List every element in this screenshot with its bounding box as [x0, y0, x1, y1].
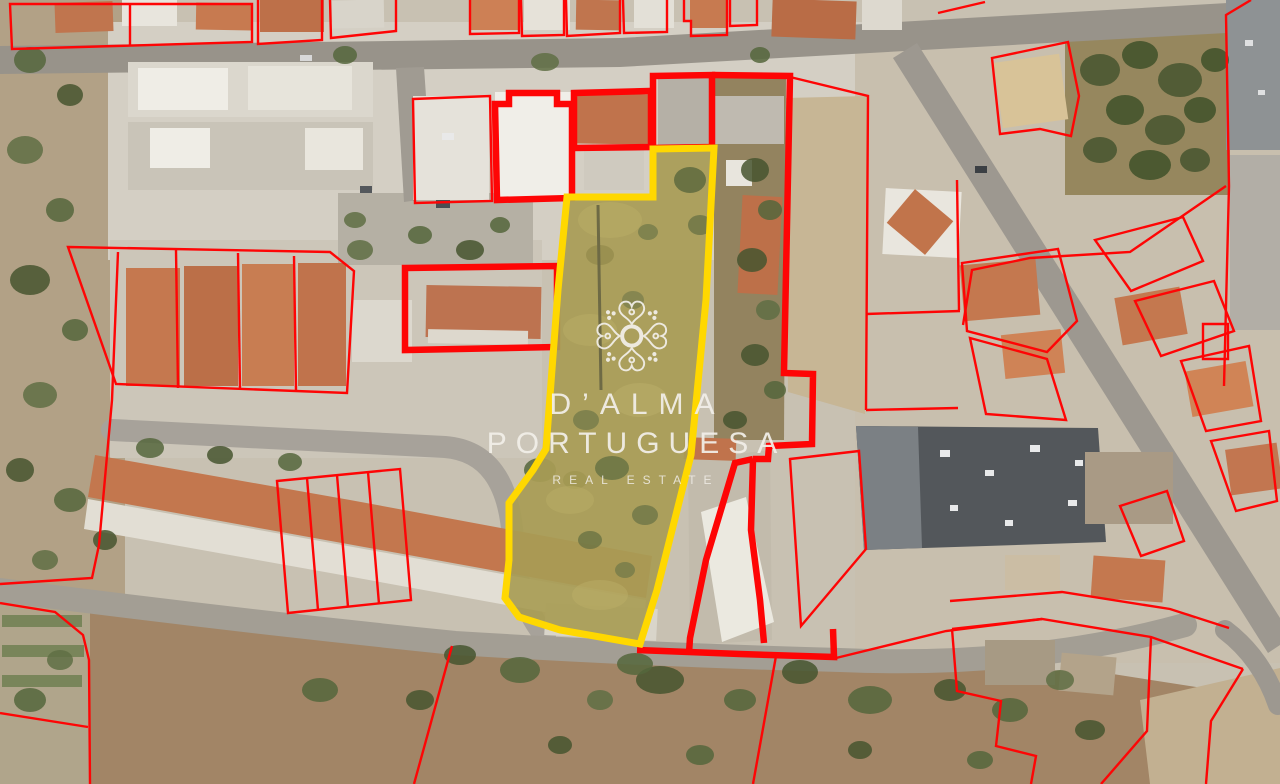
- tree: [1122, 41, 1158, 69]
- tree: [1145, 115, 1185, 145]
- tree: [1201, 48, 1229, 72]
- terrain-patch: [2, 675, 82, 687]
- tree: [23, 382, 57, 408]
- building: [1091, 556, 1166, 603]
- tree: [62, 319, 88, 341]
- rooftop-detail: [1245, 40, 1253, 46]
- building: [260, 0, 324, 32]
- tree: [1129, 150, 1171, 180]
- building: [1226, 0, 1280, 150]
- tree: [967, 751, 993, 769]
- tree: [934, 679, 966, 701]
- plot-vegetation: [572, 580, 628, 610]
- building: [138, 68, 228, 110]
- tree: [14, 688, 46, 712]
- building: [332, 0, 384, 28]
- building: [994, 54, 1069, 129]
- building: [150, 128, 210, 168]
- building: [714, 96, 784, 144]
- tree: [500, 657, 540, 683]
- building: [305, 128, 363, 170]
- tree: [1180, 148, 1210, 172]
- tree: [686, 745, 714, 765]
- building: [54, 1, 113, 33]
- plot-vegetation: [578, 202, 642, 238]
- building: [574, 93, 653, 144]
- tree: [587, 690, 613, 710]
- rooftop-detail: [950, 505, 958, 511]
- building: [576, 0, 621, 30]
- rooftop-detail: [1075, 460, 1083, 466]
- building: [771, 0, 856, 39]
- tree: [10, 265, 50, 295]
- tree: [848, 741, 872, 759]
- tree: [93, 530, 117, 550]
- building: [413, 96, 489, 200]
- terrain-patch: [786, 96, 868, 414]
- rooftop-detail: [1030, 445, 1040, 452]
- tree: [6, 458, 34, 482]
- building: [960, 259, 1041, 321]
- tree: [1106, 95, 1144, 125]
- rooftop-detail: [360, 186, 372, 193]
- building: [184, 266, 238, 386]
- tree: [1046, 670, 1074, 690]
- tree: [992, 698, 1028, 722]
- rooftop-detail: [1005, 520, 1013, 526]
- plot-vegetation: [573, 410, 599, 430]
- tree: [136, 438, 164, 458]
- plot-vegetation: [632, 505, 658, 525]
- terrain-patch: [2, 645, 84, 657]
- tree: [32, 550, 58, 570]
- building: [196, 3, 252, 31]
- rooftop-detail: [300, 55, 312, 61]
- plot-vegetation: [563, 314, 617, 346]
- plot-vegetation: [622, 291, 644, 309]
- rooftop-detail: [985, 470, 994, 476]
- tree: [406, 690, 434, 710]
- tree: [741, 344, 769, 366]
- terrain-patch: [0, 600, 90, 784]
- rooftop-detail: [940, 450, 950, 457]
- tree: [7, 136, 43, 164]
- tree: [617, 653, 653, 675]
- tree: [57, 84, 83, 106]
- plot-vegetation: [612, 383, 668, 417]
- tree: [741, 158, 769, 182]
- tree: [490, 217, 510, 233]
- tree: [737, 248, 767, 272]
- building: [126, 268, 180, 386]
- tree: [1080, 54, 1120, 86]
- red-parcel-outline: [790, 451, 866, 626]
- tree: [47, 650, 73, 670]
- tree: [782, 660, 818, 684]
- rooftop-detail: [1258, 90, 1265, 95]
- plot-vegetation: [595, 456, 629, 480]
- tree: [1184, 97, 1216, 123]
- tree: [333, 46, 357, 64]
- building: [862, 0, 902, 30]
- tree: [456, 240, 484, 260]
- building: [242, 264, 294, 386]
- red-parcel-outline: [938, 2, 985, 13]
- building: [584, 150, 644, 190]
- tree: [1083, 137, 1117, 163]
- tree: [758, 200, 782, 220]
- tree: [46, 198, 74, 222]
- building: [1085, 452, 1173, 524]
- plot-vegetation: [546, 486, 594, 514]
- tree: [1075, 720, 1105, 740]
- tree: [302, 678, 338, 702]
- tree: [548, 736, 572, 754]
- tree: [54, 488, 86, 512]
- building: [495, 92, 571, 198]
- tree: [750, 47, 770, 63]
- tree: [764, 381, 786, 399]
- plot-vegetation: [615, 562, 635, 578]
- plot-vegetation: [674, 167, 706, 193]
- plot-vegetation: [638, 224, 658, 240]
- building: [1230, 155, 1280, 330]
- tree: [207, 446, 233, 464]
- tree: [344, 212, 366, 228]
- building: [470, 0, 518, 30]
- building: [985, 640, 1055, 685]
- tree: [347, 240, 373, 260]
- tree: [531, 53, 559, 71]
- plot-vegetation: [578, 531, 602, 549]
- tree: [723, 411, 747, 429]
- building: [658, 78, 710, 146]
- tree: [14, 47, 46, 73]
- building: [428, 329, 528, 345]
- tree: [756, 300, 780, 320]
- tree: [278, 453, 302, 471]
- rooftop-detail: [1068, 500, 1077, 506]
- building: [690, 0, 726, 28]
- satellite-map-stage: D’ALMA PORTUGUESA REAL ESTATE: [0, 0, 1280, 784]
- tree: [848, 686, 892, 714]
- tree: [1158, 63, 1202, 97]
- building: [1005, 555, 1060, 590]
- rooftop-detail: [442, 133, 454, 140]
- satellite-map: [0, 0, 1280, 784]
- tree: [724, 689, 756, 711]
- building: [298, 263, 346, 386]
- building: [248, 66, 352, 110]
- rooftop-detail: [975, 166, 987, 173]
- tree: [408, 226, 432, 244]
